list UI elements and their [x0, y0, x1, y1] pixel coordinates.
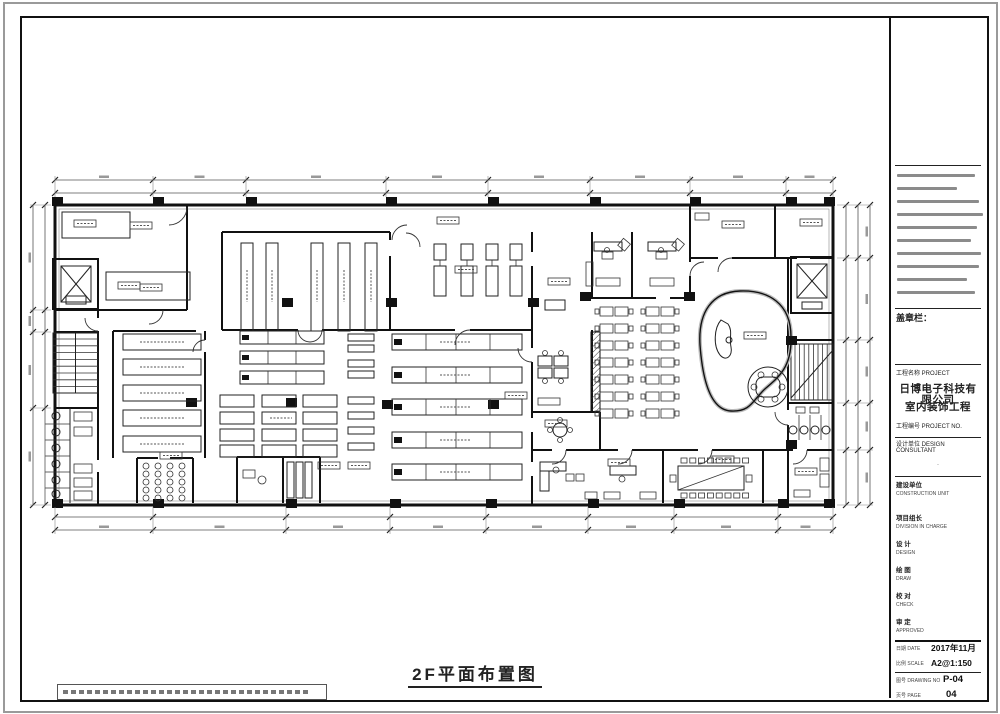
divider	[895, 672, 981, 673]
footer-note-text	[63, 690, 308, 694]
role-sub: DRAW	[896, 577, 911, 582]
meta-value: 04	[946, 690, 957, 700]
role-label: 设 计	[896, 542, 911, 549]
role-sub: CHECK	[896, 603, 914, 608]
seal-label: 盖章栏：	[896, 314, 932, 323]
stair-right	[791, 344, 833, 400]
footer-note-box	[57, 684, 327, 700]
project-label: 工程名称 PROJECT	[896, 371, 950, 377]
meta-value: 2017年11月	[931, 644, 976, 653]
role-sub: DESIGN	[896, 551, 915, 556]
elevator-left	[53, 259, 98, 309]
meta-value: A2@1:150	[931, 659, 972, 668]
divider	[895, 165, 981, 166]
divider	[895, 364, 981, 365]
note-line	[897, 239, 971, 242]
role-label: 审 定	[896, 620, 911, 627]
role-label: 校 对	[896, 594, 911, 601]
equipment-room	[434, 244, 522, 296]
drawing-title: 2F平面布置图	[370, 660, 580, 685]
shelf-column	[348, 334, 374, 450]
divider	[895, 640, 981, 642]
work-tables	[123, 334, 201, 452]
title-block: 盖章栏： 工程名称 PROJECT 日博电子科技有限公司 室内装饰工程 工程编号…	[889, 16, 985, 698]
storage-racks	[241, 243, 377, 331]
conference-chairs	[681, 458, 749, 498]
drawing-sheet: 盖章栏： 工程名称 PROJECT 日博电子科技有限公司 室内装饰工程 工程编号…	[0, 0, 1000, 714]
meta-label: 图号 DRAWING NO	[896, 679, 940, 684]
dot: ·	[895, 462, 981, 468]
role-sub: APPROVED	[896, 629, 924, 634]
design-unit-label: 设计单位 DESIGN CONSULTANT	[896, 442, 985, 455]
stool-grid	[143, 463, 185, 501]
divider	[895, 437, 981, 438]
role-label: 绘 图	[896, 568, 911, 575]
meta-label: 页号 PAGE	[896, 694, 921, 699]
floor-plan	[0, 0, 1000, 714]
stair-left	[53, 333, 98, 393]
meta-label: 日期 DATE	[896, 647, 920, 652]
note-line	[897, 265, 979, 268]
divider	[895, 476, 981, 477]
project-name: 室内装饰工程	[895, 402, 981, 413]
table-grid	[220, 395, 337, 457]
build-label: 建设单位	[896, 483, 922, 490]
note-line	[897, 291, 975, 294]
build-sub: CONSTRUCTION UNIT	[896, 492, 949, 497]
role-sub: DIVISION IN CHARGE	[896, 525, 947, 530]
note-line	[897, 213, 983, 216]
toilets	[45, 407, 830, 503]
note-line	[897, 174, 975, 177]
note-line	[897, 278, 967, 281]
note-line	[897, 187, 957, 190]
role-label: 项目组长	[896, 516, 922, 523]
workstation-cluster	[595, 307, 679, 418]
note-line	[897, 252, 981, 255]
meta-value: P-04	[943, 675, 963, 685]
meta-label: 比例 SCALE	[896, 662, 924, 667]
note-line	[897, 226, 977, 229]
project-no-label: 工程编号 PROJECT NO.	[896, 424, 962, 430]
elevator-right	[791, 257, 833, 313]
divider	[895, 308, 981, 309]
note-line	[897, 200, 979, 203]
